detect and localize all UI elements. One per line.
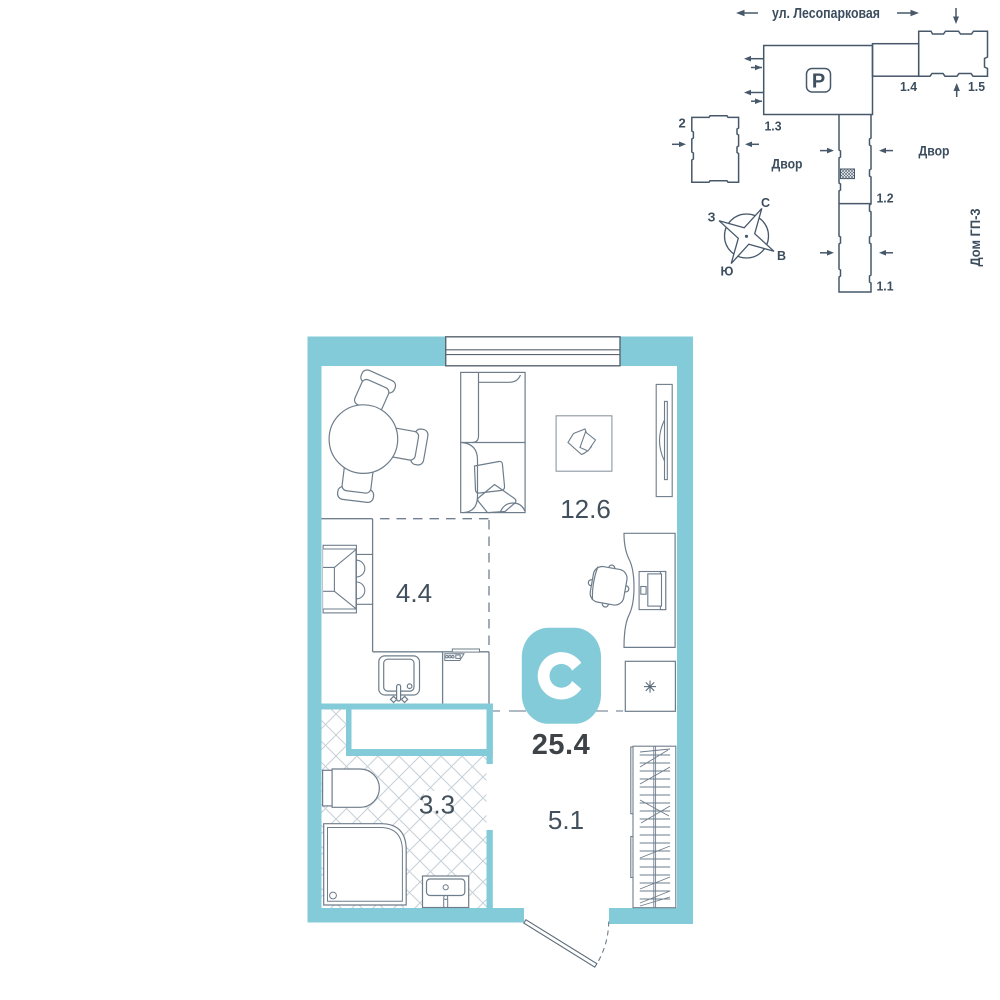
svg-text:З: З [708, 211, 716, 225]
svg-text:2: 2 [679, 116, 686, 131]
svg-text:3.3: 3.3 [419, 790, 455, 820]
svg-text:12.6: 12.6 [560, 494, 611, 524]
svg-text:1.3: 1.3 [765, 119, 782, 134]
svg-text:ул. Лесопарковая: ул. Лесопарковая [772, 6, 880, 22]
svg-text:5.1: 5.1 [548, 805, 584, 835]
svg-text:1.2: 1.2 [877, 191, 894, 206]
svg-text:Ю: Ю [721, 265, 734, 279]
svg-text:P: P [812, 71, 825, 93]
svg-text:1.4: 1.4 [900, 79, 918, 94]
svg-text:Двор: Двор [919, 143, 950, 159]
svg-text:25.4: 25.4 [532, 729, 590, 761]
svg-text:4.4: 4.4 [396, 578, 432, 608]
svg-text:В: В [777, 249, 786, 263]
svg-text:Двор: Двор [772, 156, 803, 172]
svg-text:1.1: 1.1 [877, 279, 894, 294]
svg-text:1.5: 1.5 [968, 79, 985, 94]
svg-text:С: С [761, 196, 770, 210]
svg-text:Дом ГП-3: Дом ГП-3 [967, 208, 983, 266]
